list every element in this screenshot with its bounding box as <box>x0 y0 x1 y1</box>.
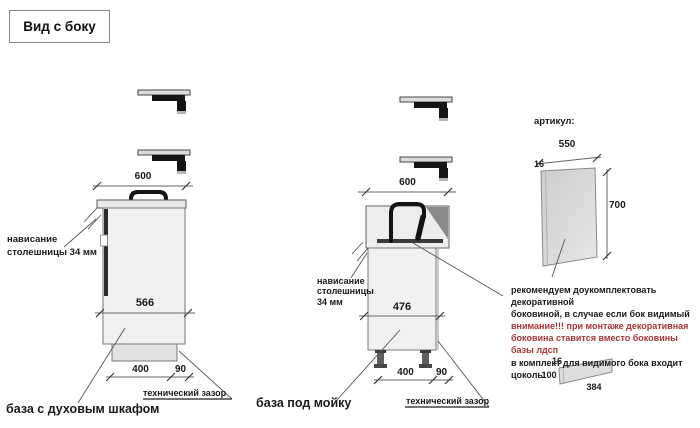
label-sink-technical-gap: технический зазор <box>406 397 489 407</box>
note-block: рекомендуем доукомплектовать декоративно… <box>511 284 700 381</box>
label-left-technical-gap: технический зазор <box>143 389 226 399</box>
oven-door-edge <box>104 209 108 296</box>
note-line: боковиной, в случае если бок видимый <box>511 308 700 320</box>
side-panel <box>541 168 597 266</box>
dim-strip-length: 384 <box>579 383 609 393</box>
label-line: столешницы <box>317 286 374 296</box>
hinge-block <box>101 235 108 246</box>
dim-left-depth: 566 <box>98 297 192 309</box>
dim-strip-height: 100 <box>538 371 560 381</box>
sheet-title: Вид с боку <box>9 10 110 43</box>
label-line: столешницы 34 мм <box>7 246 97 259</box>
sink-rim <box>377 239 443 243</box>
dim-sink-top-width: 600 <box>359 177 456 188</box>
cabinet-leg-icon <box>419 350 432 368</box>
dim-panel-thickness: 16 <box>530 160 548 170</box>
dim-left-top-width: 600 <box>93 171 193 182</box>
cabinet-leg-icon <box>374 350 387 368</box>
label-article: артикул: <box>534 117 575 127</box>
dim-panel-height: 700 <box>609 200 626 211</box>
dim-sink-depth: 476 <box>361 301 443 313</box>
dim-panel-width: 550 <box>538 139 596 150</box>
cabinet-body <box>103 208 185 344</box>
dim-sink-gap: 90 <box>433 367 450 378</box>
label-line: нависание <box>7 233 97 246</box>
countertop-bracket-icon <box>400 97 452 121</box>
caption-sink-base: база под мойку <box>256 397 351 411</box>
sink-base-drawing <box>336 97 503 407</box>
dim-left-gap: 90 <box>171 364 190 375</box>
countertop <box>97 200 186 208</box>
note-warning-line: боковина ставится вместо боковины базы л… <box>511 332 700 356</box>
dim-left-plinth-depth: 400 <box>110 364 171 375</box>
note-warning-line: внимание!!! при монтаже декоративная <box>511 320 700 332</box>
dim-strip-thickness: 16 <box>548 357 566 367</box>
caption-oven-base: база с духовым шкафом <box>6 403 159 417</box>
side-view-drawing-sheet: Вид с боку 600 нависание столешницы 34 м… <box>0 0 700 428</box>
label-line: нависание <box>317 276 374 286</box>
note-line: рекомендуем доукомплектовать декоративно… <box>511 284 700 308</box>
plinth <box>112 344 177 361</box>
oven-handle-icon <box>131 192 166 200</box>
dim-sink-plinth-depth: 400 <box>378 367 433 378</box>
cabinet-body <box>368 248 436 350</box>
label-left-overhang: нависание столешницы 34 мм <box>7 233 97 259</box>
decorative-side-panel-drawing <box>535 154 611 277</box>
countertop-bracket-icon <box>138 90 190 114</box>
